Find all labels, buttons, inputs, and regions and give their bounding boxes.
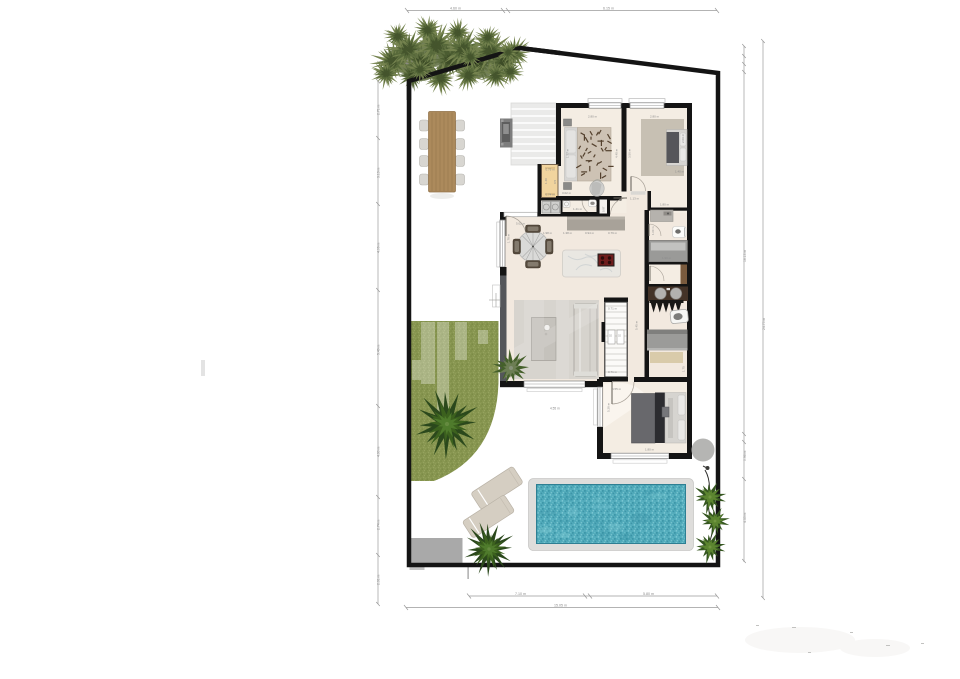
svg-text:0.74 m: 0.74 m [546,193,556,197]
svg-text:1.75: 1.75 [682,366,686,372]
svg-text:1.60 m: 1.60 m [651,226,655,235]
svg-text:0.71 m: 0.71 m [608,370,618,374]
svg-text:2.80 m: 2.80 m [588,115,598,119]
svg-text:4.60 m: 4.60 m [450,6,461,10]
svg-text:5.80 m: 5.80 m [643,592,654,596]
svg-text:2.09 m: 2.09 m [681,133,685,143]
svg-text:1.80 m: 1.80 m [660,203,670,207]
svg-text:5.49 m: 5.49 m [377,344,381,355]
svg-text:4.55 m: 4.55 m [612,387,622,391]
svg-text:1.77 m: 1.77 m [566,148,570,158]
svg-text:15.05 m: 15.05 m [554,603,567,607]
svg-text:0.5: 0.5 [553,179,557,184]
svg-text:3.56 m: 3.56 m [628,148,632,158]
svg-text:24.75 m: 24.75 m [762,318,766,330]
svg-text:1.13 m: 1.13 m [630,197,640,201]
svg-text:7.10 m: 7.10 m [515,592,526,596]
svg-text:0.96 m: 0.96 m [743,450,747,461]
svg-text:5.02 m: 5.02 m [516,222,526,226]
svg-text:3.13 m: 3.13 m [377,167,381,178]
svg-text:0.79 m: 0.79 m [608,231,618,235]
svg-text:2.71 m: 2.71 m [377,104,381,115]
svg-text:1.98 m: 1.98 m [543,231,553,235]
svg-text:4.35 m: 4.35 m [743,512,747,523]
svg-text:1.41 m: 1.41 m [573,207,583,211]
svg-text:4.30 m: 4.30 m [377,446,381,457]
svg-text:5.28 m: 5.28 m [607,402,611,412]
svg-text:1.90 m: 1.90 m [662,256,672,260]
svg-text:1.40 m: 1.40 m [675,170,685,174]
svg-text:1.80 m: 1.80 m [645,448,655,452]
svg-text:2.74 m: 2.74 m [377,519,381,530]
svg-text:1.78 m: 1.78 m [507,233,511,243]
svg-text:16.13 m: 16.13 m [743,250,747,262]
svg-text:0.79 m: 0.79 m [546,168,556,172]
svg-text:1.38 m: 1.38 m [563,231,573,235]
svg-text:4.06 m: 4.06 m [377,242,381,253]
svg-text:0.94 m: 0.94 m [585,231,595,235]
svg-text:5.45 m: 5.45 m [635,320,639,330]
svg-text:1.40: 1.40 [544,178,548,184]
svg-text:2.31 m: 2.31 m [377,574,381,585]
svg-text:0.97: 0.97 [602,206,606,212]
svg-text:0.71 m: 0.71 m [608,307,618,311]
svg-text:2.80 m: 2.80 m [650,115,660,119]
svg-text:4.40 m: 4.40 m [615,148,619,158]
svg-text:4.55 m: 4.55 m [550,407,560,411]
svg-text:3.02 m: 3.02 m [562,191,572,195]
svg-text:6.15 m: 6.15 m [603,6,614,10]
